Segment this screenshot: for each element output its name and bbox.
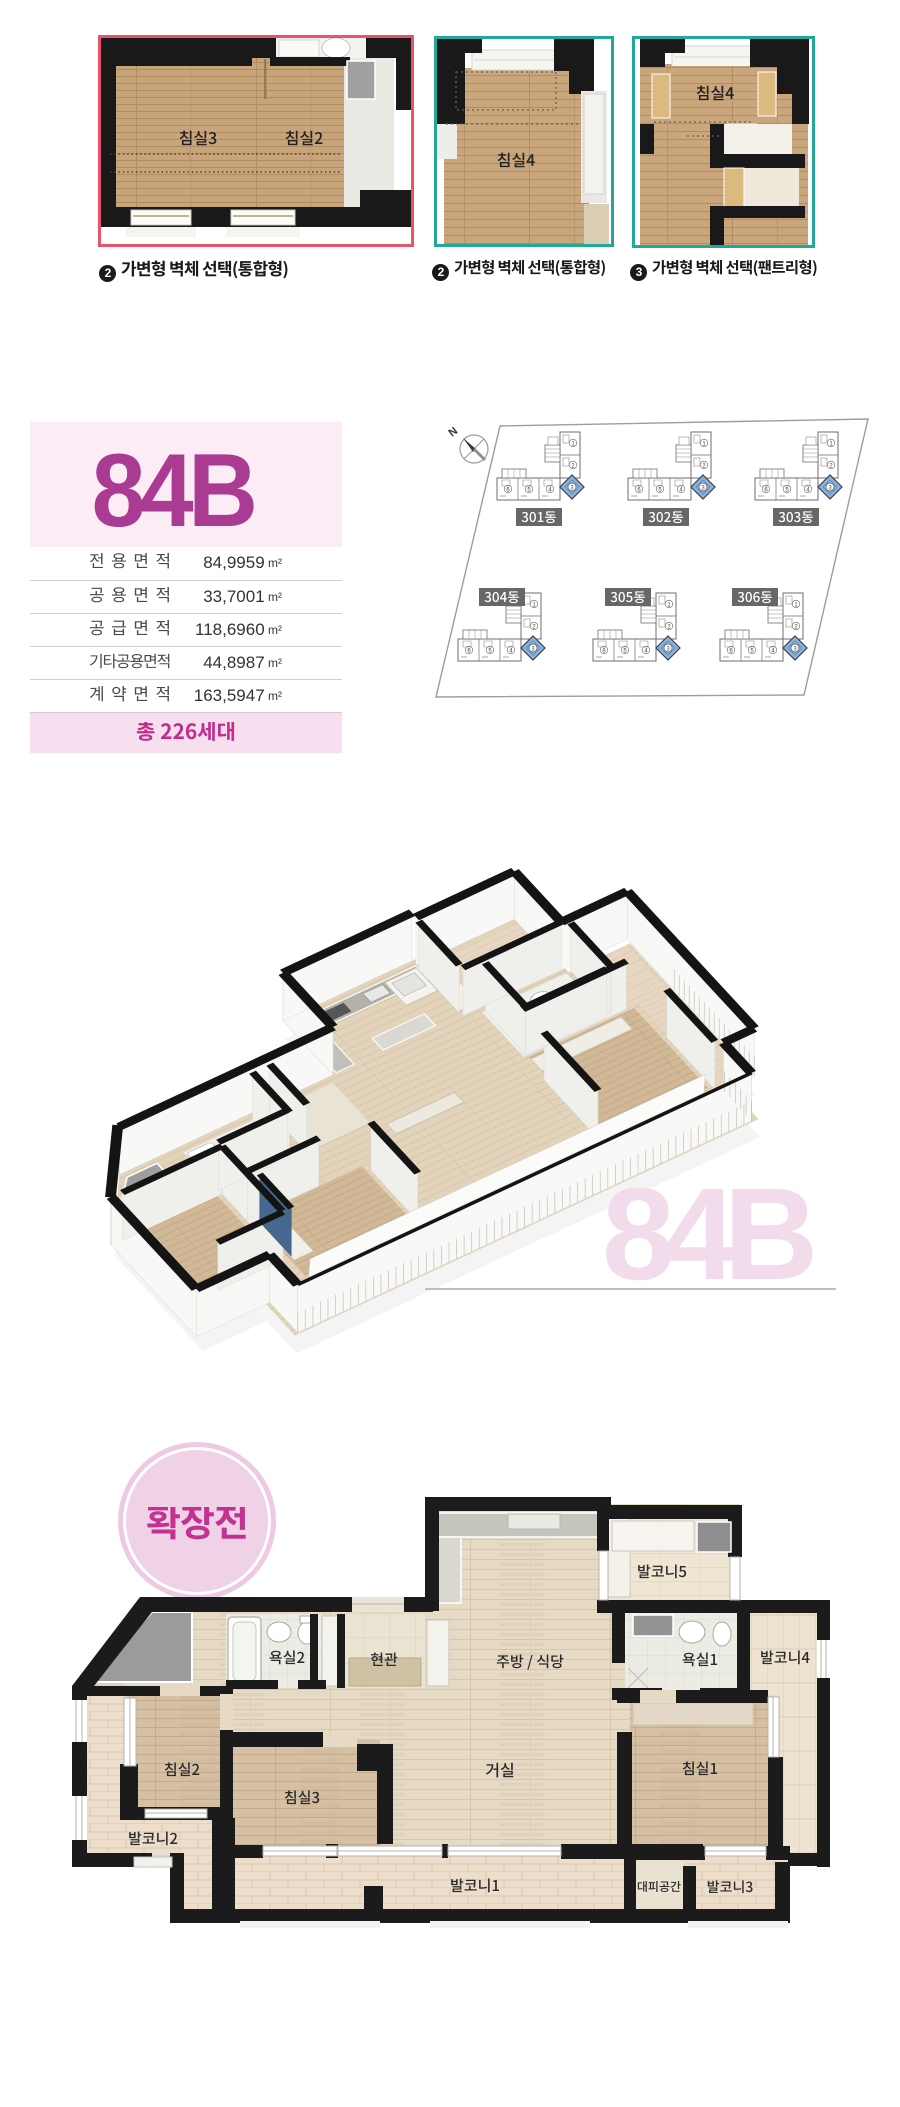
svg-text:N: N	[446, 425, 460, 439]
